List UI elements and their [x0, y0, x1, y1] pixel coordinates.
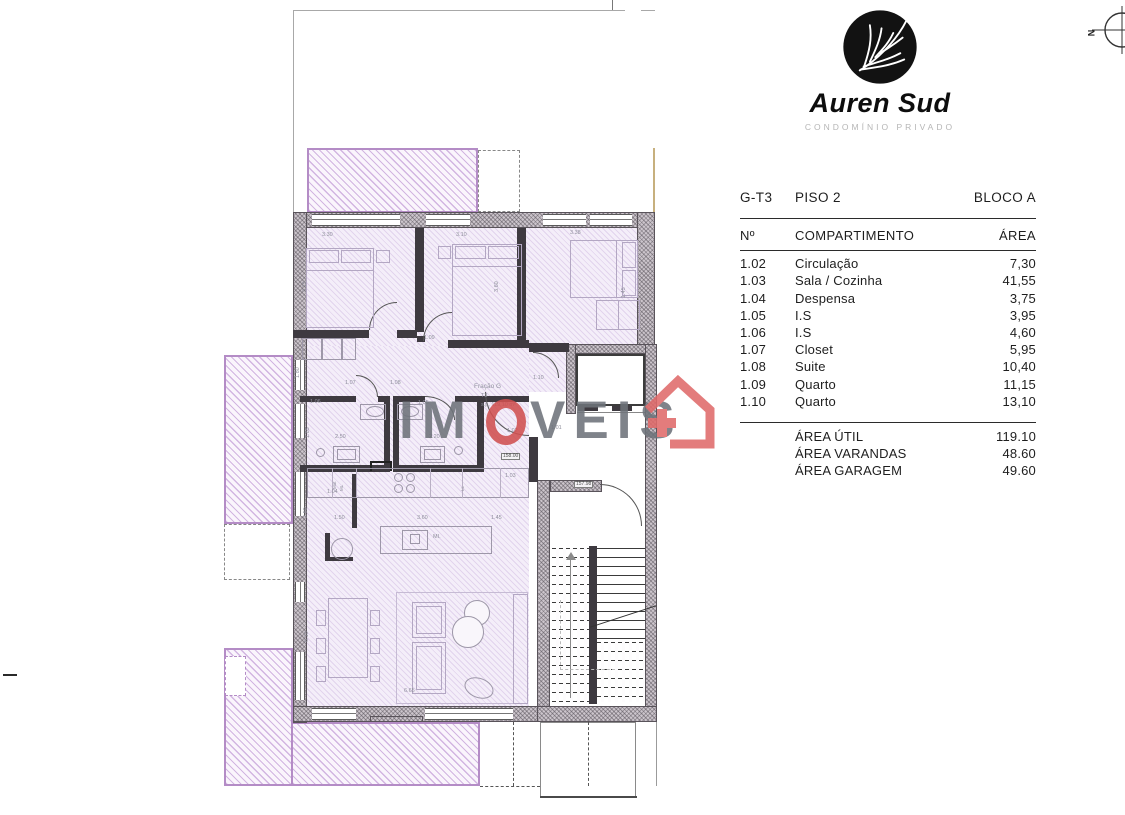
plan-label: 2.50	[335, 435, 346, 441]
window	[295, 404, 305, 438]
wall-shaft-left	[566, 344, 576, 414]
room-name: Quarto	[795, 376, 976, 393]
balcony-bottom	[291, 722, 480, 786]
brand-name: Auren Sud	[788, 88, 972, 119]
dashed-line	[513, 722, 514, 786]
room-number: 1.07	[740, 341, 795, 358]
palm-leaf-logo-icon	[841, 8, 919, 86]
partition-entry	[529, 437, 538, 482]
table-row: 1.03Sala / Cozinha41,55	[740, 272, 1036, 289]
bed-line	[616, 240, 617, 298]
room-name: Circulação	[795, 255, 976, 272]
window	[590, 214, 632, 226]
burner	[406, 484, 415, 493]
area-table-totals: ÁREA ÚTIL119.10ÁREA VARANDAS48.60ÁREA GA…	[740, 428, 1036, 480]
wall-shaft-top	[566, 344, 655, 354]
plan-label: 1.85	[306, 427, 312, 438]
col-header-num: Nº	[740, 227, 795, 244]
plan-label: 1.45	[622, 287, 628, 298]
chair	[316, 666, 326, 682]
boundary-line	[293, 10, 294, 212]
balcony-top	[307, 148, 478, 213]
room-area: 3,95	[976, 307, 1036, 324]
room-area: 5,95	[976, 341, 1036, 358]
burner	[394, 484, 403, 493]
plan-label: 3.15	[303, 281, 309, 292]
stair-arrow-head	[566, 552, 576, 560]
partition	[415, 228, 424, 332]
wall-stair-left	[537, 480, 550, 722]
plan-label: 6.10	[305, 631, 311, 642]
wall-stub	[370, 716, 423, 722]
partition	[529, 343, 569, 352]
window	[426, 214, 470, 226]
plan-label: 3.10	[456, 233, 467, 239]
shower-tray	[424, 449, 441, 460]
window	[295, 652, 305, 700]
total-label: ÁREA VARANDAS	[795, 445, 976, 462]
boundary-line	[293, 10, 625, 11]
counter-line	[356, 468, 357, 498]
total-label: ÁREA ÚTIL	[795, 428, 976, 445]
area-table-rows: 1.02Circulação7,301.03Sala / Cozinha41,5…	[740, 255, 1036, 410]
total-row: ÁREA GARAGEM49.60	[740, 462, 1036, 479]
plan-label: 1.01	[551, 426, 562, 432]
room-number: 1.08	[740, 358, 795, 375]
partition	[448, 340, 529, 348]
toilet	[454, 446, 463, 455]
plan-label: 1.50	[334, 516, 345, 522]
pillow	[488, 246, 519, 259]
table-row: 1.06I.S4,60	[740, 324, 1036, 341]
room-area: 4,60	[976, 324, 1036, 341]
compass: N	[1086, 2, 1125, 62]
room-number: 1.04	[740, 290, 795, 307]
plan-label: 1.45	[491, 516, 502, 522]
room-name: Quarto	[795, 393, 976, 410]
room-area: 10,40	[976, 358, 1036, 375]
plan-label: s.p. 119,10 m²	[481, 403, 516, 409]
pillow	[622, 242, 636, 268]
plan-label: 1.08	[390, 381, 401, 387]
floor-label: PISO 2	[795, 190, 841, 205]
partition	[397, 330, 417, 338]
window	[312, 214, 400, 226]
pillow	[309, 250, 339, 263]
balcony-notch	[225, 656, 246, 696]
garage-edge	[540, 796, 637, 798]
sofa-cushion	[416, 606, 442, 634]
chair	[316, 638, 326, 654]
plan-label: 3.60	[417, 516, 428, 522]
room-area: 3,75	[976, 290, 1036, 307]
total-value: 48.60	[976, 445, 1036, 462]
partition	[300, 396, 356, 402]
area-table-title: G-T3 PISO 2 BLOCO A	[740, 190, 1036, 208]
window	[312, 708, 356, 720]
wardrobe-line	[618, 300, 619, 330]
chair	[370, 666, 380, 682]
margin-tick	[3, 674, 17, 676]
nightstand	[438, 246, 451, 259]
boundary-tick	[612, 0, 613, 10]
counter-line	[430, 468, 431, 498]
table-rule	[740, 218, 1036, 219]
bed-line	[452, 266, 522, 267]
plan-label: 1.09	[424, 336, 435, 342]
sink	[366, 406, 384, 417]
plan-label: 157.98	[574, 481, 593, 488]
kitchen-counter	[307, 468, 529, 498]
total-row: ÁREA ÚTIL119.10	[740, 428, 1036, 445]
plan-label: LL	[461, 486, 466, 491]
dashed-terrace	[224, 524, 290, 580]
floor-plan-sheet: 3.303.103.383.153.601.451.091.801.071.08…	[0, 0, 1125, 815]
nightstand	[376, 250, 390, 263]
total-row: ÁREA VARANDAS48.60	[740, 445, 1036, 462]
plan-label: MI.	[433, 535, 441, 541]
dashed-line	[588, 722, 589, 786]
partition	[293, 330, 369, 338]
room-number: 1.02	[740, 255, 795, 272]
island-faucet	[410, 534, 420, 544]
window	[543, 214, 586, 226]
plan-label: 2.50	[304, 507, 310, 518]
table-row: 1.09Quarto11,15	[740, 376, 1036, 393]
room-area: 41,55	[976, 272, 1036, 289]
closet-unit	[302, 338, 322, 360]
plan-label: Mat	[333, 481, 338, 489]
elevator-sill	[577, 412, 645, 413]
dashed-line	[480, 786, 540, 787]
total-label: ÁREA GARAGEM	[795, 462, 976, 479]
table-rule	[740, 250, 1036, 251]
chair	[370, 638, 380, 654]
table-row: 1.04Despensa3,75	[740, 290, 1036, 307]
plan-label: 2.20	[429, 435, 440, 441]
room-name: Closet	[795, 341, 976, 358]
chair	[370, 610, 380, 626]
tv-unit	[513, 594, 528, 704]
bed-line	[306, 270, 374, 271]
plan-label: T3	[481, 394, 487, 400]
pillow	[455, 246, 486, 259]
plan-label: 1.10	[533, 376, 544, 382]
table-row: 1.10Quarto13,10	[740, 393, 1036, 410]
window	[295, 582, 305, 602]
spacer	[740, 445, 795, 462]
table-row: 1.08Suite10,40	[740, 358, 1036, 375]
room-number: 1.09	[740, 376, 795, 393]
dining-table	[328, 598, 368, 678]
plan-label: 6.65	[404, 689, 415, 695]
sofa-cushion	[416, 646, 442, 690]
table-row: 1.02Circulação7,30	[740, 255, 1036, 272]
dashed-outline	[478, 150, 520, 212]
col-header-area: ÁREA	[976, 227, 1036, 244]
area-table-header: Nº COMPARTIMENTO ÁREA	[740, 227, 1036, 244]
door-arc	[600, 484, 642, 526]
elevator-door	[578, 406, 598, 411]
plan-label: Fração G	[474, 384, 501, 391]
room-name: Sala / Cozinha	[795, 272, 976, 289]
closet-unit	[322, 338, 342, 360]
block-label: BLOCO A	[974, 190, 1036, 205]
closet-unit	[342, 338, 356, 360]
col-header-name: COMPARTIMENTO	[795, 227, 976, 244]
room-name: I.S	[795, 307, 976, 324]
room-number: 1.10	[740, 393, 795, 410]
plan-label: 3.60	[495, 281, 501, 292]
brand-subtitle: CONDOMÍNIO PRIVADO	[788, 122, 972, 132]
counter-line	[462, 468, 463, 498]
pouf	[452, 616, 484, 648]
plan-label: 1.02	[507, 429, 518, 435]
window	[425, 708, 513, 720]
table-row: 1.07Closet5,95	[740, 341, 1036, 358]
elevator-door	[612, 406, 632, 411]
compass-north-label: N	[1086, 30, 1096, 37]
brand-block: Auren Sud CONDOMÍNIO PRIVADO	[788, 8, 972, 132]
room-name: I.S	[795, 324, 976, 341]
chair	[316, 610, 326, 626]
area-table: G-T3 PISO 2 BLOCO A Nº COMPARTIMENTO ÁRE…	[740, 190, 1036, 480]
room-area: 11,15	[976, 376, 1036, 393]
pillow	[341, 250, 371, 263]
shower-tray	[337, 449, 356, 460]
wall-right	[637, 212, 655, 352]
wall-stair-right	[645, 344, 657, 722]
plan-label: 3.38	[570, 231, 581, 237]
table-rule	[740, 422, 1036, 423]
counter-line	[500, 468, 501, 498]
sink	[401, 406, 419, 417]
total-value: 49.60	[976, 462, 1036, 479]
toilet	[316, 448, 325, 457]
washer	[331, 538, 353, 560]
table-row: 1.05I.S3,95	[740, 307, 1036, 324]
plan-label: 1.80	[296, 367, 302, 378]
room-number: 1.05	[740, 307, 795, 324]
plan-label: ML	[340, 485, 345, 491]
spacer	[740, 428, 795, 445]
wall-stair-bottom	[537, 706, 657, 722]
elevator-shaft	[576, 354, 645, 406]
spacer	[740, 462, 795, 479]
room-number: 1.06	[740, 324, 795, 341]
room-name: Despensa	[795, 290, 976, 307]
plan-label: 158.00	[501, 453, 520, 460]
room-number: 1.03	[740, 272, 795, 289]
plan-label: 3.30	[322, 233, 333, 239]
plan-label: 1.06	[310, 400, 321, 406]
burner	[394, 473, 403, 482]
burner	[406, 473, 415, 482]
plan-label: 1.04	[327, 490, 338, 496]
room-area: 7,30	[976, 255, 1036, 272]
boundary-line	[641, 10, 655, 11]
stair-path	[560, 600, 615, 670]
plan-label: 1.07	[345, 381, 356, 387]
plan-label: 1.05	[418, 401, 429, 407]
unit-code: G-T3	[740, 190, 772, 205]
room-name: Suite	[795, 358, 976, 375]
balcony-left	[224, 355, 293, 524]
plan-label: 1.03	[505, 474, 516, 480]
total-value: 119.10	[976, 428, 1036, 445]
room-area: 13,10	[976, 393, 1036, 410]
